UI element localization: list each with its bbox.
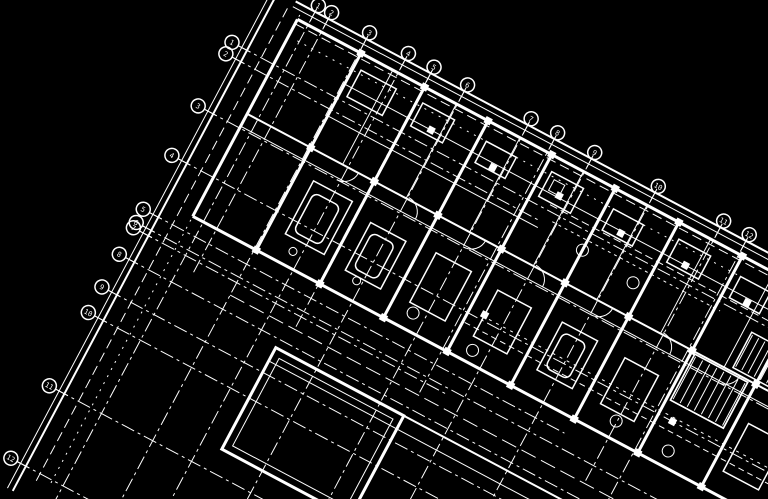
blueprint-canvas: 123456789101112123456789101112 [0,0,768,499]
blueprint-viewport: 123456789101112123456789101112 [0,0,768,499]
